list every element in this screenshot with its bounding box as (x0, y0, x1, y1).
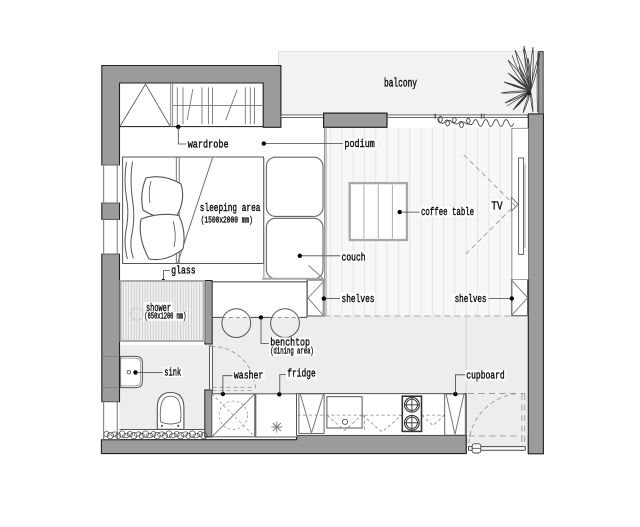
svg-text:glass: glass (171, 266, 195, 278)
svg-text:TV: TV (491, 200, 503, 214)
svg-text:podium: podium (344, 139, 375, 151)
svg-text:(dining area): (dining area) (270, 346, 314, 356)
svg-text:(850x1200 mm): (850x1200 mm) (144, 312, 186, 322)
svg-text:balcony: balcony (384, 77, 417, 90)
svg-text:sleeping area: sleeping area (200, 203, 261, 215)
svg-text:shelves: shelves (342, 294, 375, 306)
svg-text:sink: sink (164, 368, 181, 380)
svg-text:wardrobe: wardrobe (188, 139, 229, 151)
svg-text:shelves: shelves (455, 294, 487, 306)
svg-text:washer: washer (234, 370, 263, 382)
svg-text:coffee table: coffee table (421, 207, 474, 219)
svg-text:fridge: fridge (287, 369, 315, 381)
svg-text:(1500x2000 mm): (1500x2000 mm) (201, 215, 253, 225)
svg-text:couch: couch (342, 252, 366, 264)
svg-text:cupboard: cupboard (466, 371, 504, 383)
